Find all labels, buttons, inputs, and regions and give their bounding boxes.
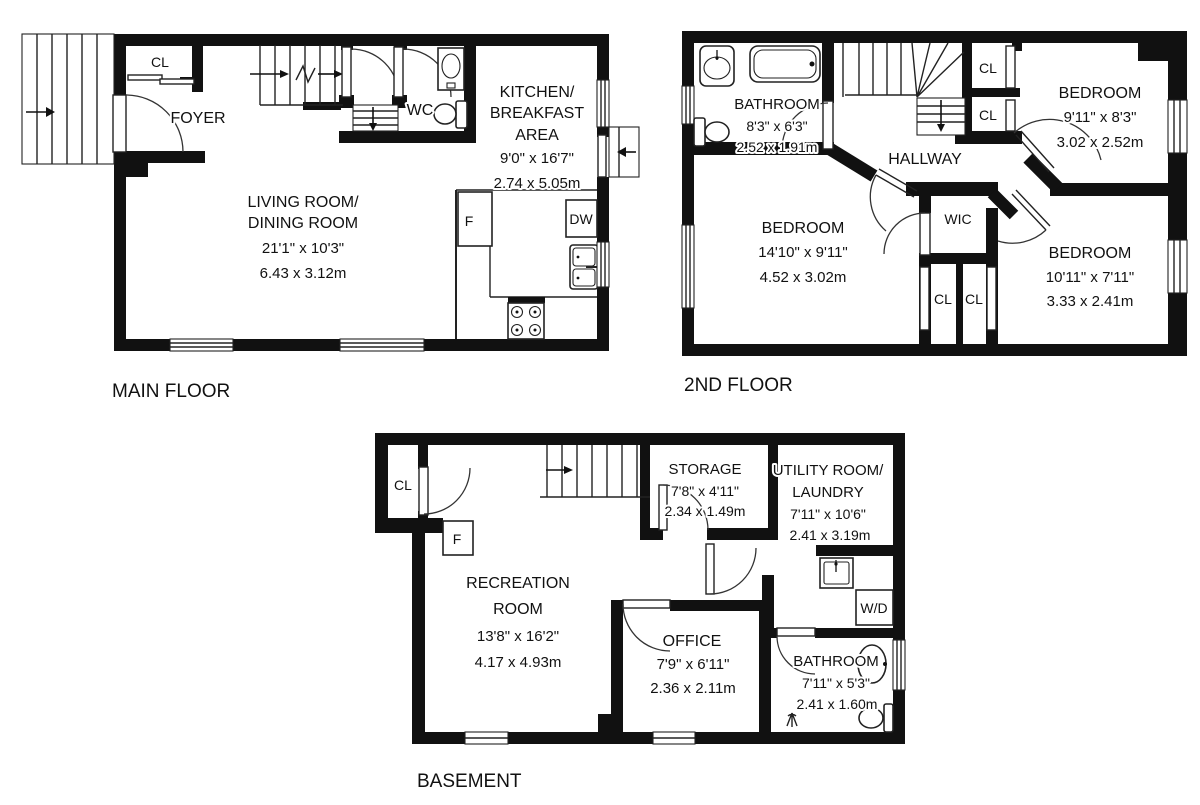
storage-line-2: 7'8" x 4'11" bbox=[671, 483, 739, 499]
main-closet-door bbox=[128, 75, 194, 84]
utility-line-1: UTILITY ROOM/ bbox=[773, 462, 884, 479]
bathroom2-line-1: BATHROOM bbox=[734, 96, 820, 113]
recreation-line-3: 13'8" x 16'2" bbox=[477, 628, 559, 645]
utility-label: UTILITY ROOM/ LAUNDRY 7'11" x 10'6" 2.41… bbox=[773, 462, 884, 543]
basement-title: BASEMENT bbox=[417, 771, 522, 792]
living-line-2: DINING ROOM bbox=[248, 215, 358, 232]
washer-dryer-label: W/D bbox=[860, 600, 887, 616]
basement-stairs bbox=[540, 445, 650, 497]
hallway-label: HALLWAY bbox=[888, 151, 962, 168]
second-stairs bbox=[843, 43, 965, 135]
freezer-label: F bbox=[453, 531, 462, 547]
bedroom-w-line-1: BEDROOM bbox=[762, 220, 845, 237]
living-line-4: 6.43 x 3.12m bbox=[260, 265, 347, 282]
bedroom-w-line-2: 14'10" x 9'11" bbox=[758, 244, 848, 261]
kitchen-line-1: KITCHEN/ bbox=[500, 84, 575, 101]
shower-icon bbox=[787, 713, 797, 727]
basement-closet-door bbox=[419, 467, 470, 515]
bath2-toilet-icon bbox=[694, 118, 729, 146]
basement-bathroom-label: BATHROOM 7'11" x 5'3" 2.41 x 1.60m bbox=[793, 653, 879, 712]
upper-closet-doors bbox=[1006, 46, 1015, 131]
hall-door bbox=[342, 47, 399, 97]
side-entry bbox=[598, 127, 639, 177]
closet-lower1-label: CL bbox=[934, 291, 952, 307]
foyer-label: FOYER bbox=[170, 110, 225, 127]
bath2-sink-icon bbox=[700, 46, 734, 86]
bedroom-se-line-3: 3.33 x 2.41m bbox=[1047, 293, 1134, 310]
storage-label: STORAGE 7'8" x 4'11" 2.34 x 1.49m bbox=[665, 461, 746, 519]
closet-lower2-label: CL bbox=[965, 291, 983, 307]
kitchen-line-3: AREA bbox=[515, 127, 559, 144]
basement-bath-line-1: BATHROOM bbox=[793, 653, 879, 670]
bathroom2-label: BATHROOM 8'3" x 6'3" 2.52 x 1.91m bbox=[734, 96, 820, 155]
floorplan-page: CL FOYER WC F DW KITCHEN/ BREAKFAST AREA… bbox=[0, 0, 1200, 805]
wic-door bbox=[884, 213, 930, 255]
wc-toilet-icon bbox=[434, 101, 467, 128]
bedroom-se-line-2: 10'11" x 7'11" bbox=[1046, 269, 1134, 286]
office-line-3: 2.36 x 2.11m bbox=[650, 680, 736, 697]
kitchen-line-2: BREAKFAST bbox=[490, 105, 584, 122]
bedroom-se-line-1: BEDROOM bbox=[1049, 245, 1132, 262]
bedroom-ne-line-3: 3.02 x 2.52m bbox=[1057, 134, 1144, 151]
bedroom-w-label: BEDROOM 14'10" x 9'11" 4.52 x 3.02m bbox=[758, 220, 848, 286]
storage-line-1: STORAGE bbox=[668, 461, 741, 478]
kitchen-line-5: 2.74 x 5.05m bbox=[494, 175, 581, 192]
basement-bath-line-3: 2.41 x 1.60m bbox=[797, 696, 878, 712]
bedroom-ne-line-1: BEDROOM bbox=[1059, 85, 1142, 102]
main-stairs-up bbox=[250, 45, 343, 105]
recreation-line-4: 4.17 x 4.93m bbox=[475, 654, 562, 671]
recreation-line-2: ROOM bbox=[493, 601, 543, 618]
second-floor-plan: BATHROOM 8'3" x 6'3" 2.52 x 1.91m HALLWA… bbox=[682, 31, 1187, 396]
laundry-sink-icon bbox=[820, 558, 853, 588]
utility-line-3: 7'11" x 10'6" bbox=[790, 506, 866, 522]
utility-line-4: 2.41 x 3.19m bbox=[790, 527, 871, 543]
basement-bath-line-2: 7'11" x 5'3" bbox=[802, 675, 870, 691]
hallway-door bbox=[706, 544, 756, 594]
basement-closet-label: CL bbox=[394, 477, 412, 493]
bedroom-w-line-3: 4.52 x 3.02m bbox=[760, 269, 847, 286]
living-room-label: LIVING ROOM/ DINING ROOM 21'1" x 10'3" 6… bbox=[247, 194, 359, 282]
second-floor-title: 2ND FLOOR bbox=[684, 375, 793, 396]
office-line-2: 7'9" x 6'11" bbox=[657, 656, 730, 673]
living-line-1: LIVING ROOM/ bbox=[247, 194, 359, 211]
bedroom-se-door bbox=[998, 190, 1050, 243]
dishwasher-label: DW bbox=[569, 211, 593, 227]
wc-label: WC bbox=[407, 102, 434, 119]
main-closet-label: CL bbox=[151, 54, 169, 70]
storage-line-3: 2.34 x 1.49m bbox=[665, 503, 746, 519]
main-stairs-down bbox=[353, 105, 398, 131]
bathroom2-line-2: 8'3" x 6'3" bbox=[746, 118, 807, 134]
wc-sink-icon bbox=[438, 48, 464, 90]
living-line-3: 21'1" x 10'3" bbox=[262, 240, 344, 257]
main-front-stoop bbox=[22, 34, 114, 164]
recreation-line-1: RECREATION bbox=[466, 575, 570, 592]
kitchen-label: KITCHEN/ BREAKFAST AREA 9'0" x 16'7" 2.7… bbox=[490, 84, 584, 192]
office-line-1: OFFICE bbox=[663, 633, 722, 650]
basement-plan: CL F STORAGE 7'8" x 4'11" 2.34 x 1.49m U… bbox=[375, 433, 905, 792]
utility-line-2: LAUNDRY bbox=[792, 484, 863, 501]
bathtub-icon bbox=[750, 46, 820, 82]
floorplan-drawing: CL FOYER WC F DW KITCHEN/ BREAKFAST AREA… bbox=[0, 0, 1200, 805]
stove-icon bbox=[508, 303, 544, 339]
main-floor-plan: CL FOYER WC F DW KITCHEN/ BREAKFAST AREA… bbox=[22, 34, 639, 402]
closet-upper2-label: CL bbox=[979, 107, 997, 123]
closet-upper1-label: CL bbox=[979, 60, 997, 76]
bedroom-w-door bbox=[870, 169, 917, 231]
fridge-label: F bbox=[465, 213, 474, 229]
bedroom-ne-line-2: 9'11" x 8'3" bbox=[1064, 109, 1137, 126]
main-floor-title: MAIN FLOOR bbox=[112, 381, 230, 402]
recreation-label: RECREATION ROOM 13'8" x 16'2" 4.17 x 4.9… bbox=[466, 575, 570, 671]
wic-label: WIC bbox=[944, 211, 971, 227]
kitchen-sink-icon bbox=[570, 245, 599, 289]
office-label: OFFICE 7'9" x 6'11" 2.36 x 2.11m bbox=[650, 633, 736, 697]
bedroom-se-label: BEDROOM 10'11" x 7'11" 3.33 x 2.41m bbox=[1046, 245, 1134, 310]
kitchen-line-4: 9'0" x 16'7" bbox=[500, 150, 574, 167]
bedroom-ne-label: BEDROOM 9'11" x 8'3" 3.02 x 2.52m bbox=[1057, 85, 1144, 151]
bathroom2-line-3: 2.52 x 1.91m bbox=[737, 139, 818, 155]
